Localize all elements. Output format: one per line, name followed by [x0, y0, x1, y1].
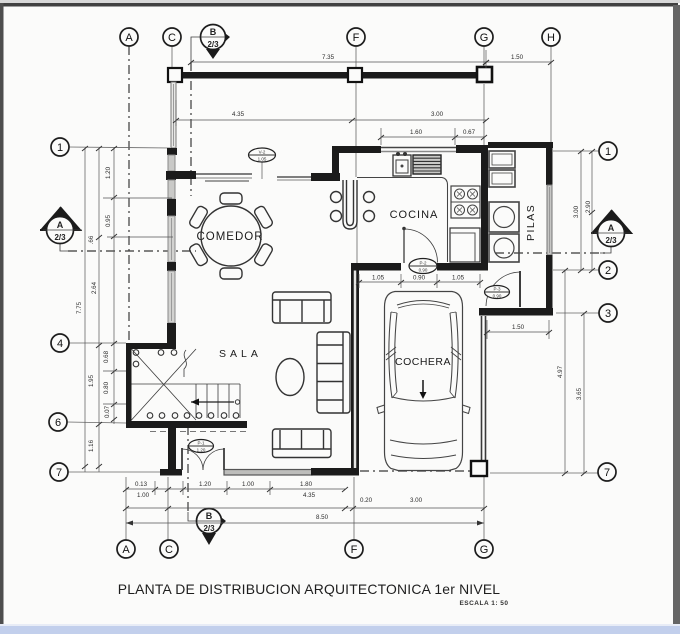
svg-text:F: F — [351, 544, 358, 556]
svg-text:1.00: 1.00 — [137, 492, 150, 499]
svg-text:8.50: 8.50 — [316, 514, 329, 521]
svg-text:COCINA: COCINA — [390, 209, 439, 221]
svg-text:P-1: P-1 — [197, 441, 205, 446]
svg-text:0.95: 0.95 — [105, 214, 112, 227]
svg-text:2/3: 2/3 — [203, 524, 215, 533]
svg-text:2.90: 2.90 — [585, 200, 592, 213]
svg-text:3.65: 3.65 — [576, 387, 583, 400]
svg-text:A: A — [122, 544, 130, 556]
svg-text:2/3: 2/3 — [207, 40, 219, 49]
svg-text:0.90: 0.90 — [419, 268, 428, 273]
svg-text:PILAS: PILAS — [525, 204, 537, 241]
svg-text:A: A — [57, 220, 64, 230]
svg-text:4.97: 4.97 — [557, 365, 564, 378]
svg-text:3.00: 3.00 — [573, 205, 580, 218]
svg-text:0.13: 0.13 — [135, 481, 148, 488]
svg-text:0.67: 0.67 — [463, 129, 476, 136]
svg-text:0.68: 0.68 — [103, 350, 110, 363]
svg-text:.66: .66 — [88, 235, 95, 244]
svg-text:A: A — [125, 32, 133, 44]
svg-text:1.60: 1.60 — [410, 129, 423, 136]
svg-text:1.20: 1.20 — [105, 166, 112, 179]
svg-text:P-2: P-2 — [419, 261, 427, 266]
svg-text:G: G — [480, 32, 489, 44]
svg-text:1.50: 1.50 — [511, 54, 524, 61]
svg-text:G: G — [480, 544, 489, 556]
svg-text:0.07: 0.07 — [104, 405, 111, 418]
svg-text:2: 2 — [605, 265, 611, 277]
svg-text:1.20: 1.20 — [199, 481, 212, 488]
svg-text:3.00: 3.00 — [431, 111, 444, 118]
svg-text:1.05: 1.05 — [258, 157, 267, 162]
svg-text:H: H — [547, 32, 555, 44]
svg-text:3.00: 3.00 — [410, 497, 423, 504]
svg-text:0.20: 0.20 — [360, 497, 373, 504]
svg-text:SALA: SALA — [219, 348, 262, 360]
svg-text:PLANTA DE DISTRIBUCION ARQUITE: PLANTA DE DISTRIBUCION ARQUITECTONICA 1e… — [118, 581, 501, 597]
svg-text:1: 1 — [57, 142, 63, 154]
svg-text:4: 4 — [57, 338, 63, 350]
svg-text:0.90: 0.90 — [493, 294, 502, 299]
svg-text:3: 3 — [605, 308, 611, 320]
svg-text:C: C — [165, 544, 173, 556]
svg-text:1.95: 1.95 — [88, 374, 95, 387]
svg-text:1.50: 1.50 — [512, 324, 525, 331]
svg-text:COMEDOR: COMEDOR — [196, 231, 263, 243]
svg-text:C: C — [168, 32, 176, 44]
svg-text:7: 7 — [604, 467, 610, 479]
svg-text:F: F — [353, 32, 360, 44]
svg-text:2/3: 2/3 — [605, 236, 617, 245]
svg-text:1.80: 1.80 — [300, 481, 313, 488]
svg-text:V-2: V-2 — [259, 150, 266, 155]
svg-text:4.35: 4.35 — [303, 492, 316, 499]
svg-text:B: B — [210, 27, 217, 37]
svg-text:A: A — [608, 223, 615, 233]
svg-text:1.20: 1.20 — [197, 448, 206, 453]
svg-text:ESCALA 1: 50: ESCALA 1: 50 — [459, 600, 508, 607]
svg-text:1.05: 1.05 — [372, 275, 385, 282]
svg-text:7.75: 7.75 — [76, 301, 83, 314]
svg-text:2/3: 2/3 — [54, 233, 66, 242]
svg-text:4.35: 4.35 — [232, 111, 245, 118]
svg-text:1.05: 1.05 — [452, 275, 465, 282]
svg-text:7.35: 7.35 — [322, 54, 335, 61]
svg-text:B: B — [206, 511, 213, 521]
svg-text:7: 7 — [56, 467, 62, 479]
svg-text:0.80: 0.80 — [103, 381, 110, 394]
svg-text:P-3: P-3 — [493, 287, 501, 292]
svg-text:1.16: 1.16 — [88, 439, 95, 452]
svg-text:1: 1 — [605, 146, 611, 158]
svg-text:2.64: 2.64 — [91, 281, 98, 294]
svg-text:0.90: 0.90 — [413, 275, 426, 282]
svg-text:1.00: 1.00 — [242, 481, 255, 488]
svg-text:COCHERA: COCHERA — [395, 356, 451, 368]
svg-text:6: 6 — [55, 417, 61, 429]
